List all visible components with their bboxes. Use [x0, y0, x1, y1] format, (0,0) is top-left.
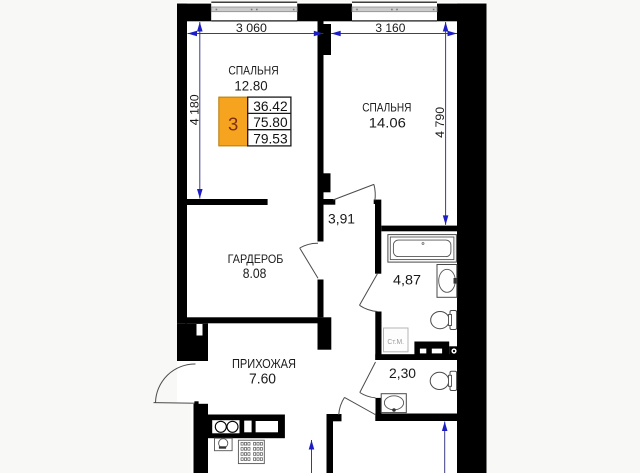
- svg-text:3: 3: [228, 113, 238, 134]
- svg-text:36.42: 36.42: [253, 99, 287, 114]
- svg-text:4 790: 4 790: [433, 106, 447, 137]
- svg-text:СПАЛЬНЯ: СПАЛЬНЯ: [362, 100, 411, 114]
- svg-text:4 180: 4 180: [188, 94, 202, 125]
- svg-text:Ст.М.: Ст.М.: [387, 339, 404, 346]
- svg-text:СПАЛЬНЯ: СПАЛЬНЯ: [228, 64, 278, 78]
- svg-text:ГАРДЕРОБ: ГАРДЕРОБ: [228, 252, 284, 266]
- svg-text:8.08: 8.08: [243, 265, 267, 281]
- svg-text:2,30: 2,30: [389, 365, 416, 381]
- svg-text:12.80: 12.80: [234, 78, 267, 94]
- svg-text:3 160: 3 160: [375, 21, 405, 35]
- svg-text:14.06: 14.06: [369, 115, 406, 131]
- svg-text:ПРИХОЖАЯ: ПРИХОЖАЯ: [232, 357, 296, 371]
- svg-text:7.60: 7.60: [249, 372, 276, 388]
- svg-text:79.53: 79.53: [253, 131, 288, 146]
- svg-text:75.80: 75.80: [253, 115, 288, 130]
- svg-text:4,87: 4,87: [393, 272, 421, 288]
- svg-text:3 060: 3 060: [236, 21, 267, 35]
- svg-text:3,91: 3,91: [328, 211, 355, 227]
